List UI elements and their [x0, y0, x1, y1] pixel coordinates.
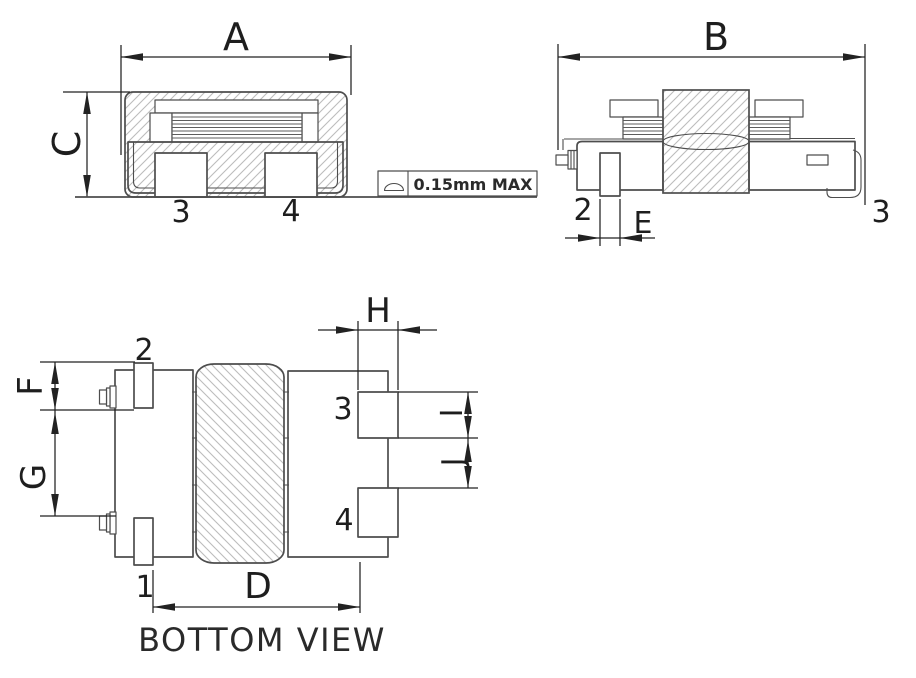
- front-winding-turns: [172, 117, 302, 138]
- arrowhead: [558, 53, 580, 61]
- bottom-pad-4: [358, 488, 398, 537]
- arrowhead: [83, 92, 91, 114]
- dim-g: G: [14, 412, 59, 516]
- side-slot: [807, 155, 828, 165]
- arrowhead: [153, 603, 175, 611]
- bottom-terminal-upper: [100, 386, 117, 408]
- bottom-view-caption: BOTTOM VIEW: [138, 621, 386, 659]
- arrowhead: [51, 494, 59, 516]
- terminal-collar: [110, 512, 116, 534]
- dim-c: C: [45, 92, 130, 197]
- coplanarity-note-text: 0.15mm MAX: [413, 175, 533, 194]
- component-dimension-drawing: A C 3 4 0.15mm MAX: [0, 0, 916, 678]
- arrowhead: [398, 326, 420, 334]
- side-pin-2-label: 2: [573, 193, 592, 228]
- front-core-plate: [155, 100, 318, 113]
- terminal-tip: [100, 516, 107, 530]
- dim-label-b: B: [703, 15, 729, 59]
- extension-line: [600, 199, 620, 246]
- dim-label-e: E: [634, 206, 653, 241]
- dim-d: D: [153, 562, 360, 613]
- arrowhead: [338, 603, 360, 611]
- front-pad-4-label: 4: [281, 194, 300, 229]
- bottom-flange-left: [115, 370, 193, 557]
- side-cap-right: [755, 100, 803, 117]
- arrowhead: [843, 53, 865, 61]
- dim-label-d: D: [244, 566, 272, 607]
- front-pad-3-label: 3: [171, 195, 190, 230]
- arrowhead: [464, 416, 472, 438]
- front-pad-4: [265, 153, 317, 197]
- front-pad-3: [155, 153, 207, 197]
- dim-label-g: G: [14, 464, 54, 490]
- bottom-pad-4-label: 4: [334, 503, 353, 538]
- terminal-tip: [100, 390, 107, 404]
- dim-label-c: C: [45, 131, 89, 158]
- arrowhead: [464, 466, 472, 488]
- bottom-pin-2-tab: [134, 363, 153, 408]
- arrowhead: [51, 412, 59, 434]
- arrowhead: [51, 388, 59, 410]
- bottom-pad-3-label: 3: [333, 392, 352, 427]
- front-bobbin-flange-right: [302, 113, 318, 142]
- bottom-pin-1-label: 1: [135, 570, 154, 605]
- dim-label-f: F: [11, 376, 51, 396]
- terminal-collar: [110, 386, 116, 408]
- arrowhead: [336, 326, 358, 334]
- bottom-pin-1-tab: [134, 518, 153, 565]
- arrowhead: [83, 175, 91, 197]
- bottom-pin-2-label: 2: [134, 333, 153, 368]
- dim-label-h: H: [365, 291, 391, 331]
- side-pin-2-tab: [600, 153, 620, 196]
- side-view: B E 2 3: [556, 15, 891, 246]
- side-cap-left: [610, 100, 658, 117]
- bottom-core-cylinder: [196, 364, 284, 563]
- side-pin-tip: [556, 155, 568, 165]
- dim-j: J: [436, 440, 472, 488]
- dim-label-a: A: [223, 15, 249, 59]
- side-pin-3-label: 3: [871, 195, 890, 230]
- arrowhead: [578, 234, 600, 242]
- arrowhead: [329, 53, 351, 61]
- side-body-right: [749, 142, 855, 191]
- front-bobbin-flange-left: [150, 113, 172, 142]
- arrowhead: [121, 53, 143, 61]
- bottom-pad-3: [358, 392, 398, 438]
- dim-label-j: J: [436, 458, 471, 469]
- technical-drawing-page: A C 3 4 0.15mm MAX: [0, 0, 916, 678]
- side-pin-collar: [568, 151, 577, 170]
- dim-label-i: I: [435, 409, 470, 418]
- bottom-view: F G H I J: [11, 291, 478, 659]
- coplanarity-callout: 0.15mm MAX: [378, 171, 537, 196]
- side-core-column: [663, 90, 749, 193]
- arrowhead: [51, 362, 59, 384]
- bottom-terminal-lower: [100, 512, 117, 534]
